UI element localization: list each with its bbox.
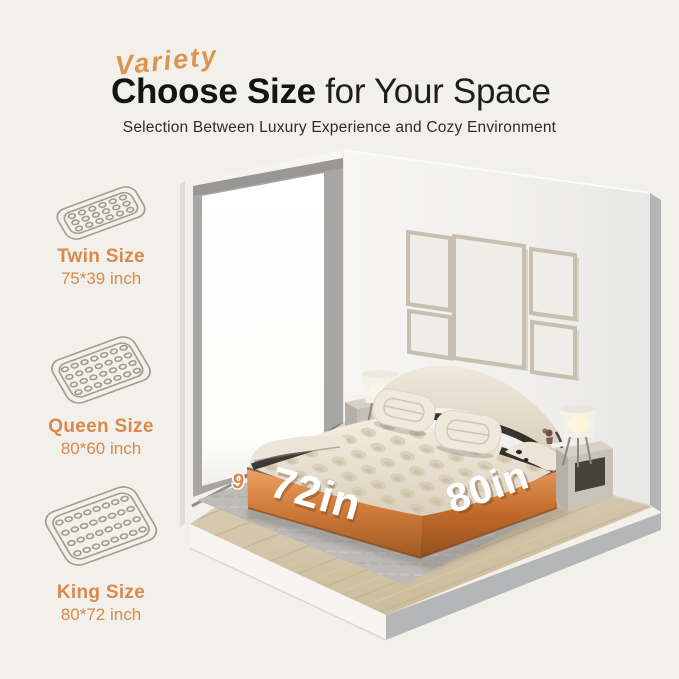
room-illustration: 9 72in 72in 80in 80in bbox=[0, 0, 679, 679]
frame-large bbox=[454, 236, 524, 368]
frame-small-left bbox=[409, 311, 450, 358]
right-table-lamp bbox=[560, 405, 596, 467]
plant-pot bbox=[546, 437, 553, 444]
frame-small-right bbox=[532, 322, 575, 378]
frame-portrait bbox=[408, 232, 450, 310]
frame-medium bbox=[531, 249, 575, 319]
wall-edge bbox=[650, 193, 661, 512]
